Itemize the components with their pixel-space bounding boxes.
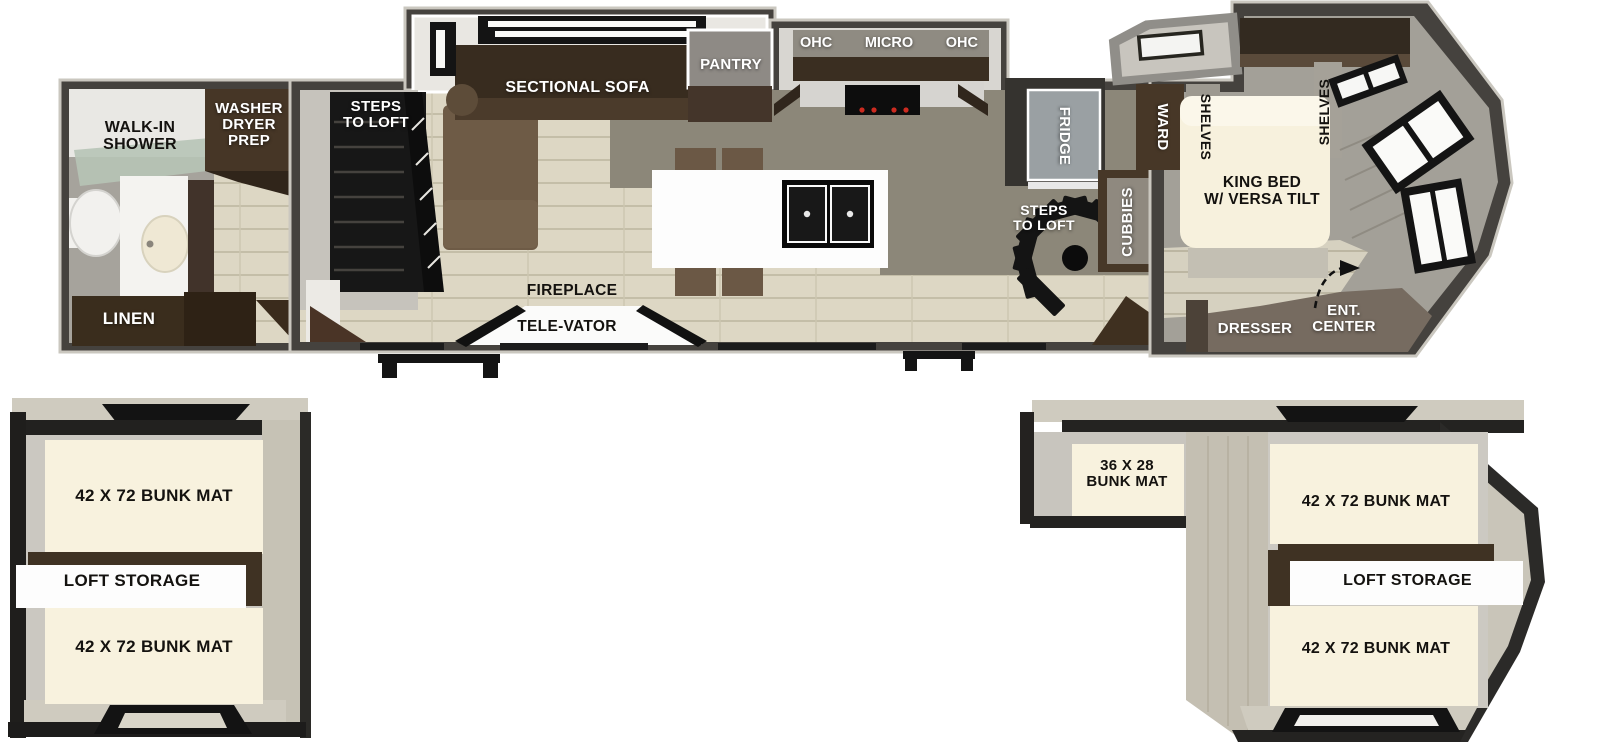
loft-left-bunk-top-label: 42 X 72 BUNK MAT	[42, 487, 266, 505]
micro-label: MICRO	[865, 35, 913, 51]
loft-left-storage-shadow	[28, 552, 262, 567]
ohc-right-label: OHC	[946, 35, 978, 51]
shelves-left-label: SHELVES	[1193, 81, 1213, 173]
side-window-icon	[430, 22, 456, 76]
loft-left-right-wall	[262, 420, 302, 724]
loft-right-bunk-small-label: 36 X 28 BUNK MAT	[1060, 458, 1194, 490]
fireplace-label: FIREPLACE	[512, 283, 632, 300]
tall-cabinet	[188, 180, 214, 308]
loft-left-bunk-bottom-label: 42 X 72 BUNK MAT	[42, 638, 266, 656]
loft-right-storage-shadow	[1278, 544, 1494, 561]
chair-icon	[675, 266, 716, 296]
overhead-cabinet	[1240, 18, 1410, 60]
toilet-icon	[70, 190, 122, 256]
loft-left	[8, 398, 311, 738]
pantry-area	[688, 30, 772, 122]
loft-right-storage-label: LOFT STORAGE	[1300, 572, 1515, 589]
bed-platform	[1188, 248, 1328, 278]
corner-cabinet	[184, 292, 256, 346]
king-bed-label: KING BED W/ VERSA TILT	[1182, 175, 1342, 208]
ohc-micro-ohc-labels: OHC MICRO OHC	[800, 33, 978, 53]
loft-right-wall-column	[1186, 432, 1268, 740]
loft-left-storage-shadow-side	[244, 552, 262, 606]
entry-steps-icon	[378, 351, 975, 378]
ohc-left-label: OHC	[800, 35, 832, 51]
tele-vator-label: TELE-VATOR	[507, 319, 627, 336]
pantry-label: PANTRY	[692, 57, 770, 73]
loft-left-storage-label: LOFT STORAGE	[22, 572, 242, 590]
loft-left-stair-opening	[102, 404, 250, 422]
cubbies-label: CUBBIES	[1120, 177, 1140, 267]
loft-right-left-bottom-wall	[1030, 516, 1186, 528]
cooktop-icon	[845, 85, 920, 115]
chair-icon	[722, 266, 763, 296]
shelves-right-label: SHELVES	[1317, 64, 1337, 160]
loft-right-bottom-opening-inner	[1294, 715, 1439, 726]
rear-window-icon	[1139, 32, 1203, 59]
loft-left-right-edge	[300, 412, 311, 738]
dresser-label: DRESSER	[1205, 321, 1305, 337]
loft-right-storage-shadow-side	[1268, 550, 1290, 606]
loft-right-top-face	[1032, 400, 1524, 422]
faucet-icon	[147, 241, 154, 248]
steps-to-loft-label: STEPS TO LOFT	[324, 99, 428, 131]
double-sink-icon	[782, 180, 874, 248]
washer-dryer-prep-label: WASHER DRYER PREP	[203, 101, 295, 150]
loft-right-stair-opening	[1276, 406, 1418, 422]
ward-label: WARD	[1150, 89, 1170, 165]
loft-right-bunk-top-label: 42 X 72 BUNK MAT	[1276, 493, 1476, 510]
fridge-label: FRIDGE	[1052, 91, 1072, 181]
loft-right-left-wall	[1020, 412, 1034, 524]
floorplan-page: WALK-IN SHOWER WASHER DRYER PREP LINEN S…	[0, 0, 1600, 745]
ent-center-label: ENT. CENTER	[1299, 303, 1389, 335]
bedroom-slide-wall	[1107, 12, 1242, 85]
linen-label: LINEN	[84, 310, 174, 328]
steps-to-loft-spiral-label: STEPS TO LOFT	[992, 203, 1096, 233]
loft-right-bunk-bottom-label: 42 X 72 BUNK MAT	[1276, 640, 1476, 657]
walk-in-shower-label: WALK-IN SHOWER	[84, 119, 196, 154]
sofa-window-icon	[478, 16, 706, 44]
loft-right	[1020, 400, 1545, 742]
loft-left-bottom-opening-inner	[118, 713, 227, 728]
sectional-sofa-label: SECTIONAL SOFA	[470, 79, 685, 96]
